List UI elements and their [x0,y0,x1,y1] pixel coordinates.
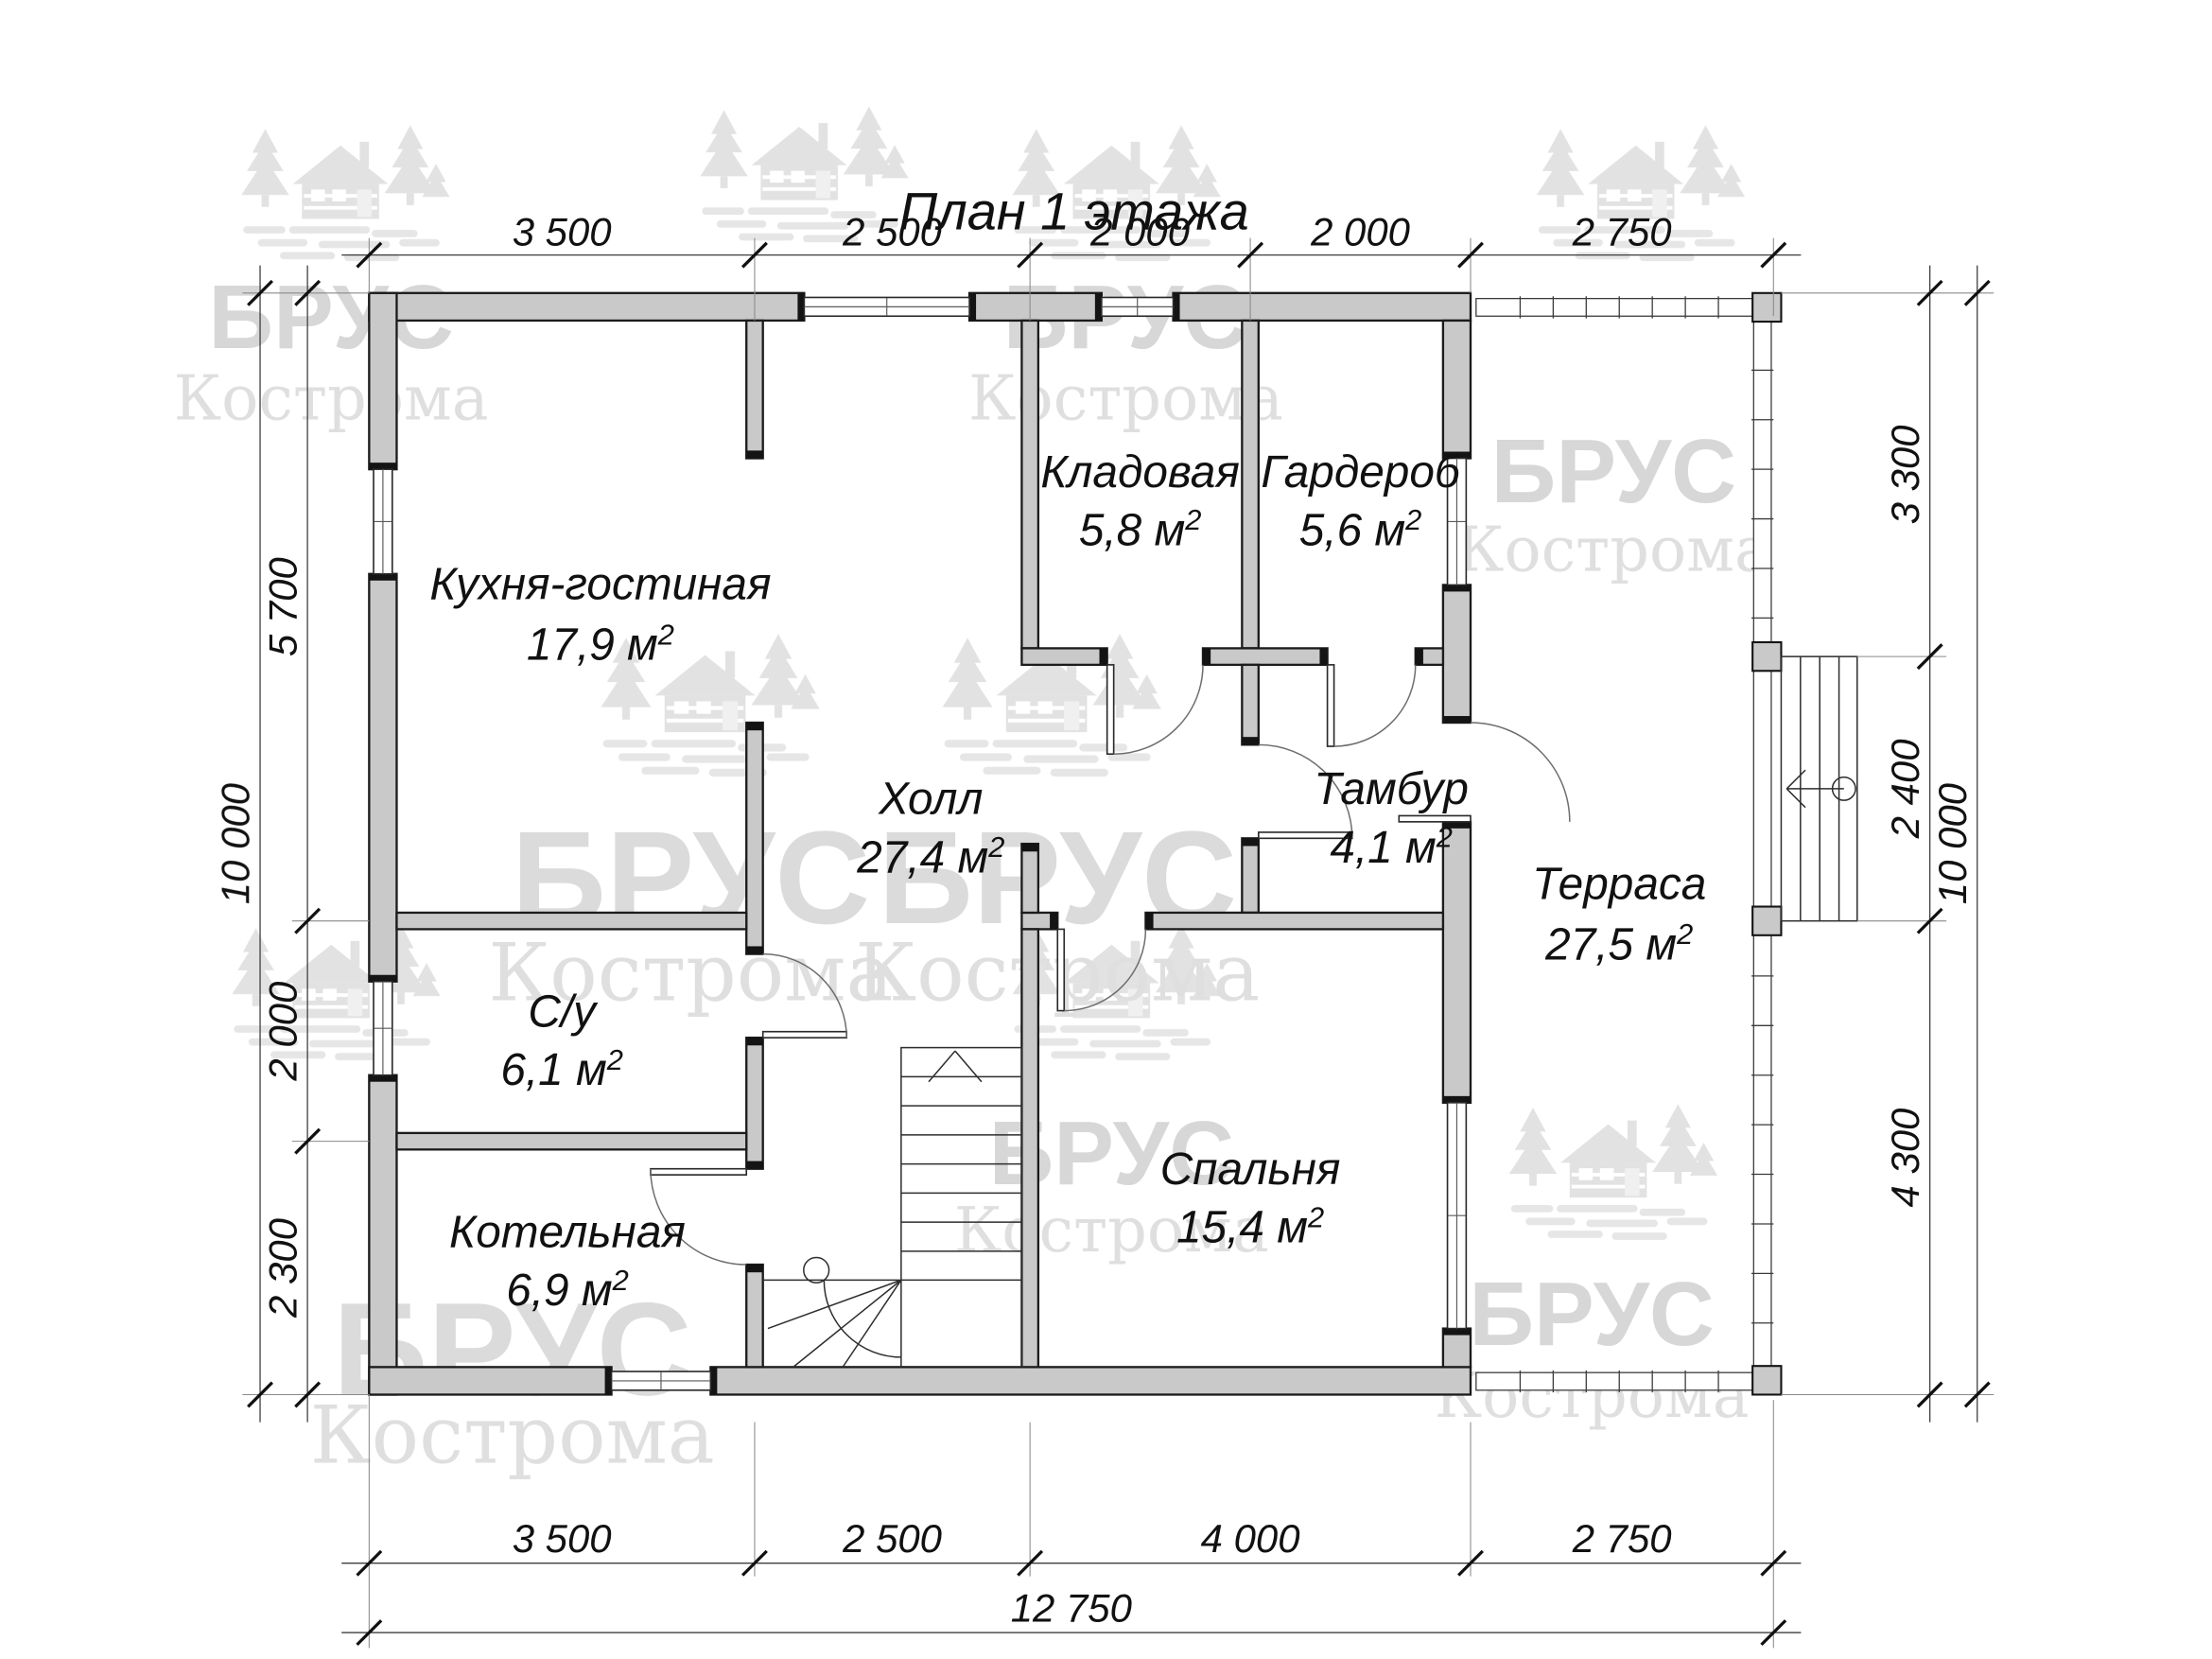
room-area: 5,8 м2 [1079,503,1202,555]
window-bedroom-right [1448,1103,1467,1329]
dimension-left: 5 700 2 000 2 300 10 000 [213,266,369,1423]
dim-label: 2 000 [260,982,305,1082]
room-name: Котельная [449,1207,686,1257]
dim-label: 4 000 [1201,1516,1300,1561]
dim-label: 12 750 [1011,1585,1132,1630]
dim-label: 4 300 [1883,1109,1927,1208]
floor-plan-page: БРУС Кострома БРУС Кострома БРУС Костром… [0,0,2212,1659]
room-name: Кухня-гостиная [429,560,771,610]
watermark-brand: БРУС [1491,422,1736,522]
room-name: Кладовая [1040,447,1240,498]
dim-label: 3 300 [1883,426,1927,525]
dim-label: 5 700 [260,557,305,656]
room-label-kitchen-living: Кухня-гостиная 17,9 м2 [429,560,771,671]
floor-plan-drawing: БРУС Кострома БРУС Кострома БРУС Костром… [0,0,2212,1659]
room-label-wardrobe: Гардероб 5,6 м2 [1261,447,1462,556]
dim-label: 2 000 [1089,210,1190,254]
room-name: С/у [528,987,599,1037]
dim-label: 2 500 [842,1516,942,1561]
dim-label: 10 000 [213,783,257,904]
room-name: Гардероб [1261,447,1462,498]
dim-label: 2 000 [1310,210,1410,254]
room-area: 15,4 м2 [1176,1200,1324,1252]
room-name: Холл [878,775,983,825]
railing-post [1752,642,1781,671]
room-name: Тамбур [1314,764,1469,814]
page-title: План 1 этажа [899,181,1249,240]
dim-label: 2 750 [1572,1516,1672,1561]
railing-post [1752,293,1781,322]
railing-post [1752,1366,1781,1394]
window-kitchen-top [804,297,969,316]
room-area: 27,4 м2 [856,830,1004,882]
watermark-city: Кострома [1456,514,1771,585]
dim-label: 2 750 [1572,210,1672,254]
dim-label: 2 300 [260,1218,305,1318]
room-area: 17,9 м2 [527,618,674,670]
room-name: Спальня [1160,1144,1341,1195]
room-area: 27,5 м2 [1544,917,1693,969]
room-area: 6,1 м2 [500,1043,623,1095]
room-label-pantry: Кладовая 5,8 м2 [1040,447,1240,556]
room-name: Терраса [1532,859,1706,909]
railing-post [1752,907,1781,935]
room-area: 6,9 м2 [506,1264,629,1316]
window-boiler-bottom [612,1371,711,1390]
dim-label: 2 500 [842,210,942,254]
window-kitchen-left [374,469,392,574]
dim-label: 3 500 [513,1516,612,1561]
window-bathroom-left [374,982,392,1075]
dim-label: 10 000 [1930,783,1975,904]
watermark-city: Кострома [174,363,489,435]
watermark-brand: БРУС [1469,1265,1714,1365]
door-wardrobe [1328,665,1416,746]
dim-label: 2 400 [1883,739,1927,839]
dimension-right: 3 300 2 400 4 300 10 000 [1781,266,1994,1423]
entrance-steps [1781,656,1856,921]
dim-label: 3 500 [513,210,612,254]
room-label-terrace: Терраса 27,5 м2 [1532,859,1706,969]
watermark-city: Кострома [310,1389,715,1482]
watermark-city: Кострома [1435,1360,1750,1432]
watermark-city: Кострома [968,363,1283,435]
room-area: 4,1 м2 [1330,821,1453,873]
window-storage-top [1102,297,1174,316]
room-area: 5,6 м2 [1299,503,1422,555]
